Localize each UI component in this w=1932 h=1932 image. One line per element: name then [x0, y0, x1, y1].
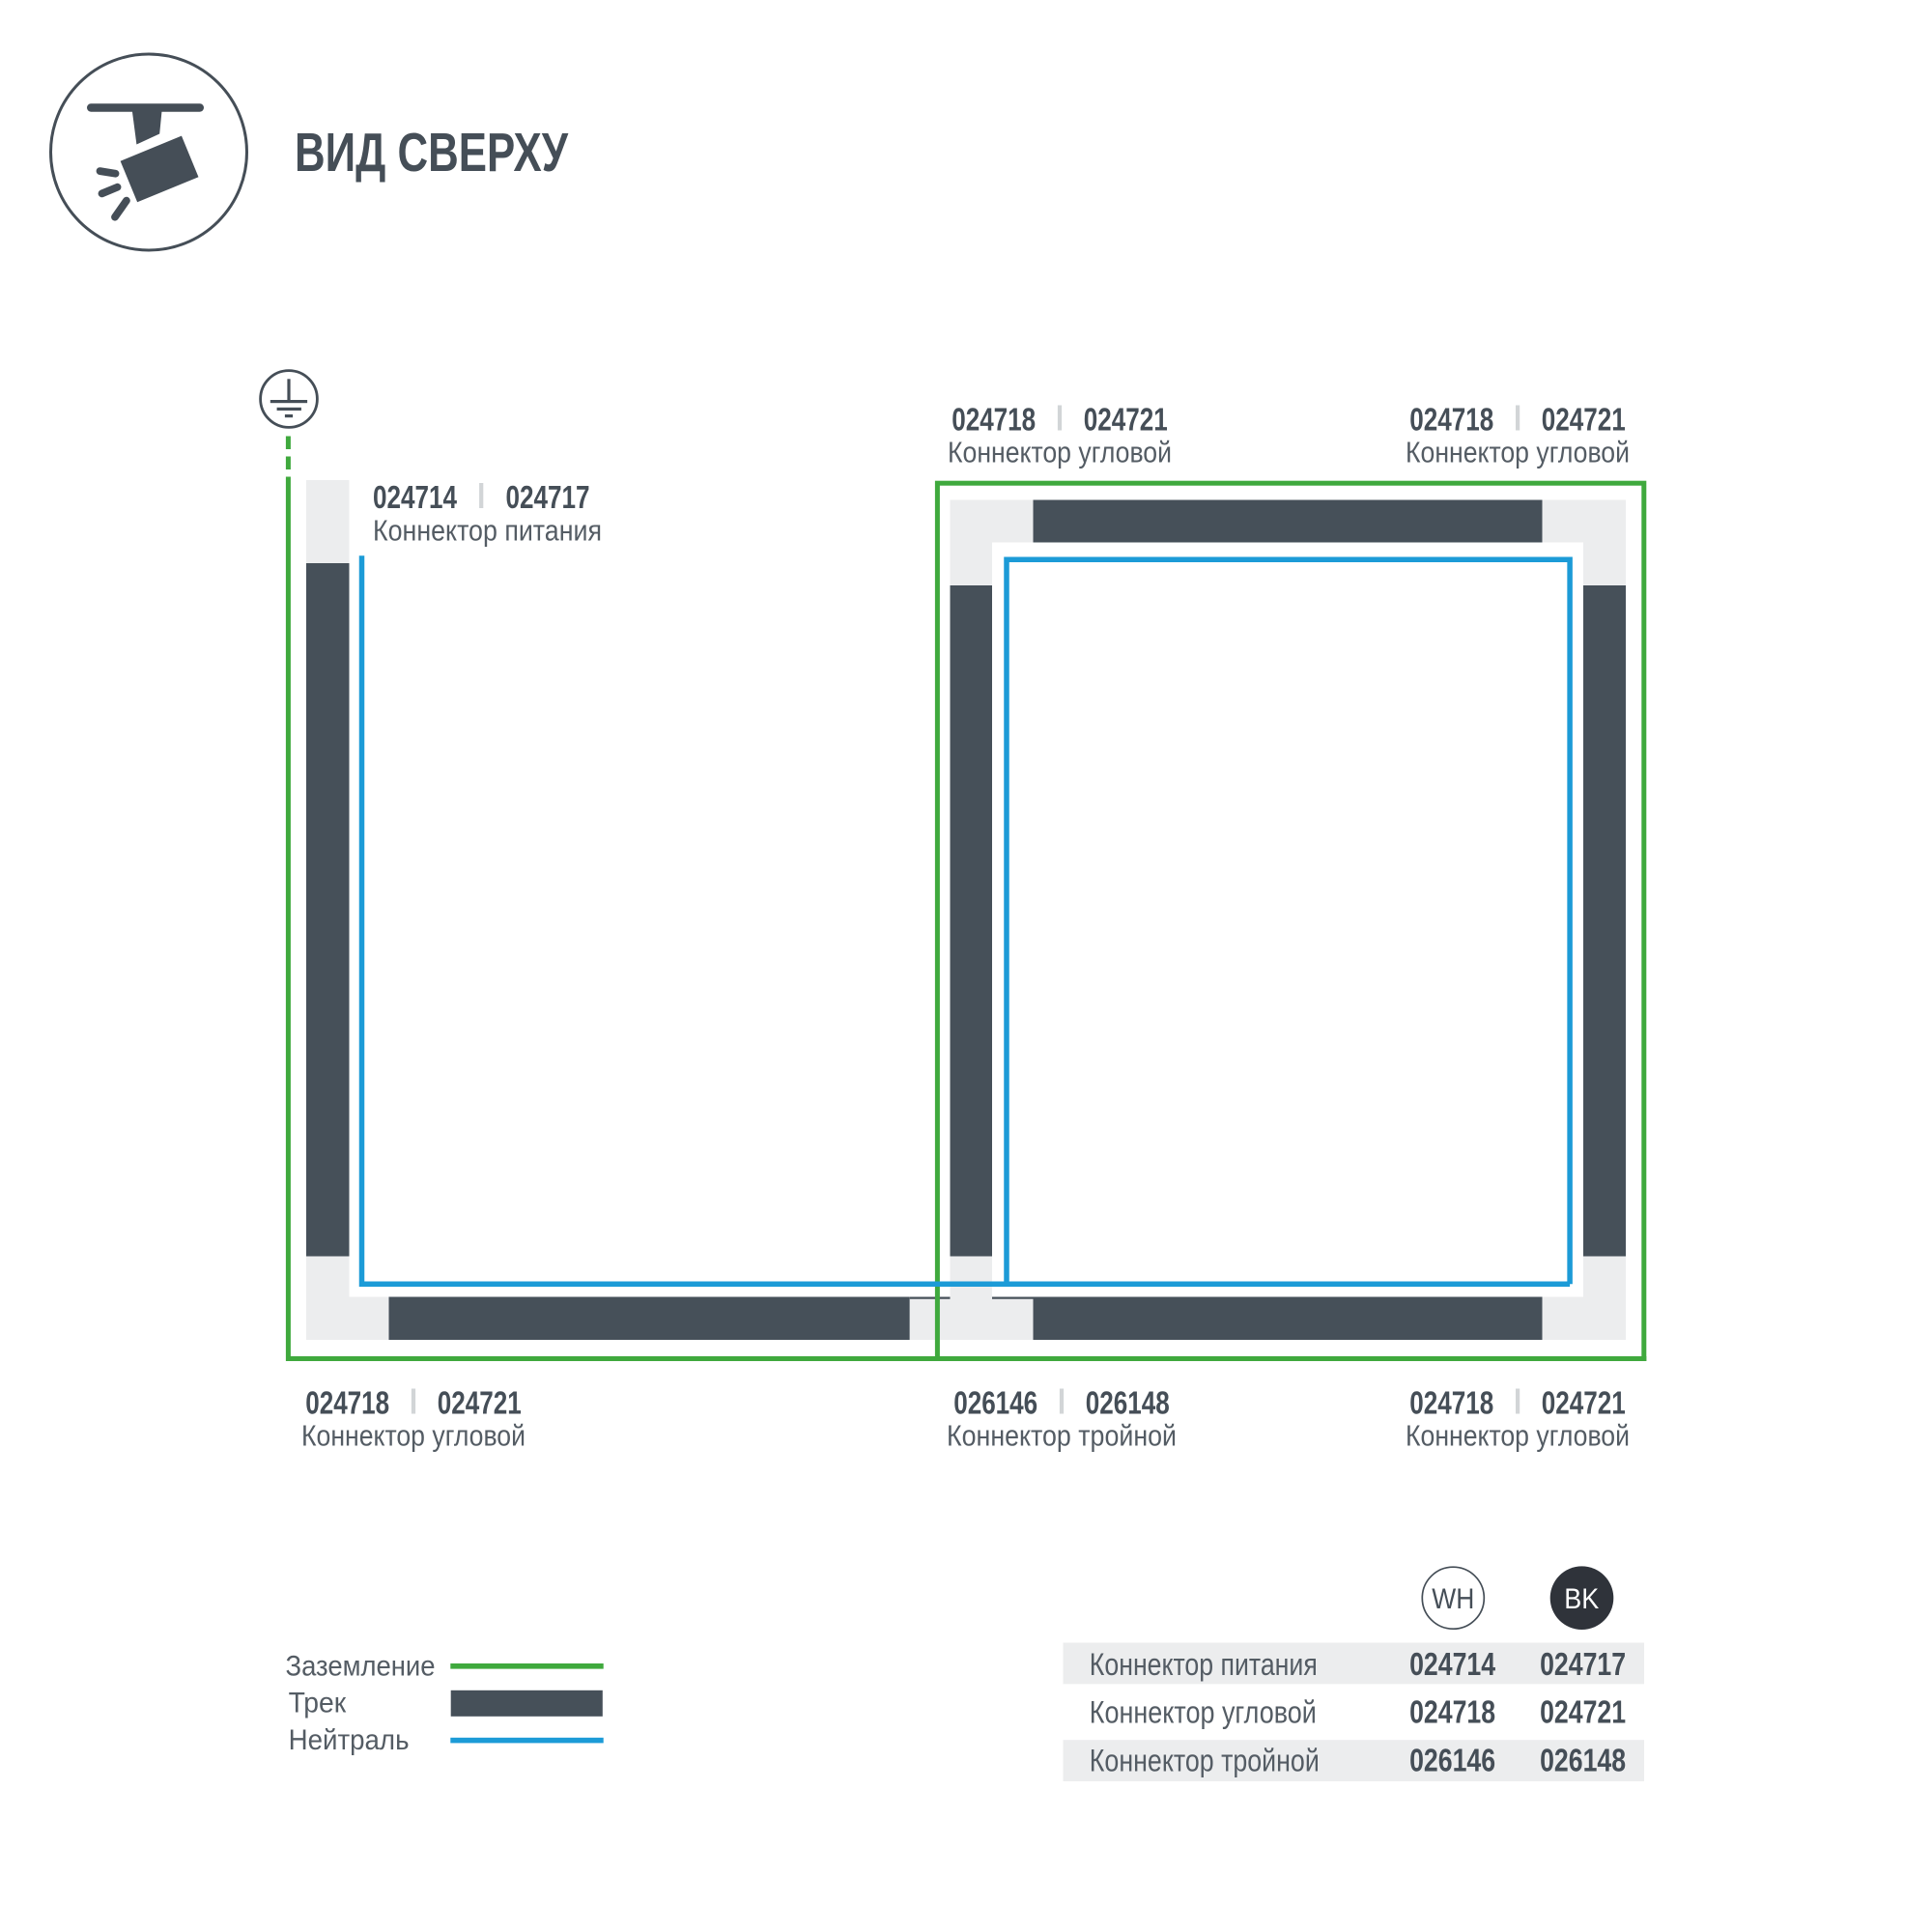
svg-text:Коннектор питания: Коннектор питания [373, 514, 602, 548]
svg-text:Коннектор тройной: Коннектор тройной [1090, 1744, 1320, 1778]
svg-text:026146: 026146 [953, 1385, 1037, 1421]
svg-text:024721: 024721 [1540, 1694, 1626, 1730]
svg-text:ВИД СВЕРХУ: ВИД СВЕРХУ [295, 122, 568, 184]
svg-text:Трек: Трек [289, 1688, 347, 1719]
svg-text:024721: 024721 [1542, 1385, 1626, 1421]
svg-text:024718: 024718 [305, 1385, 389, 1421]
svg-text:024721: 024721 [1542, 402, 1626, 438]
svg-text:024714: 024714 [373, 479, 458, 515]
svg-text:Коннектор угловой: Коннектор угловой [948, 436, 1172, 469]
svg-text:Заземление: Заземление [286, 1651, 436, 1683]
svg-text:024714: 024714 [1409, 1646, 1496, 1682]
svg-text:026148: 026148 [1540, 1743, 1626, 1778]
svg-text:026146: 026146 [1409, 1743, 1495, 1778]
svg-text:WH: WH [1432, 1583, 1474, 1615]
svg-text:Коннектор угловой: Коннектор угловой [1090, 1695, 1317, 1730]
svg-text:BK: BK [1564, 1583, 1599, 1615]
svg-text:024718: 024718 [1409, 1385, 1493, 1421]
svg-text:Коннектор угловой: Коннектор угловой [1406, 1419, 1630, 1453]
svg-text:024718: 024718 [1409, 402, 1493, 438]
svg-text:024718: 024718 [1409, 1694, 1495, 1730]
svg-text:024721: 024721 [438, 1385, 522, 1421]
svg-text:024718: 024718 [952, 402, 1036, 438]
svg-text:Коннектор тройной: Коннектор тройной [947, 1419, 1177, 1453]
svg-text:Коннектор угловой: Коннектор угловой [301, 1419, 526, 1453]
svg-text:026148: 026148 [1086, 1385, 1170, 1421]
svg-text:Коннектор угловой: Коннектор угловой [1406, 436, 1630, 469]
svg-text:024717: 024717 [506, 479, 590, 515]
svg-text:024721: 024721 [1084, 402, 1168, 438]
svg-text:Коннектор питания: Коннектор питания [1090, 1647, 1318, 1682]
svg-text:Нейтраль: Нейтраль [289, 1724, 410, 1756]
svg-text:024717: 024717 [1540, 1646, 1626, 1682]
